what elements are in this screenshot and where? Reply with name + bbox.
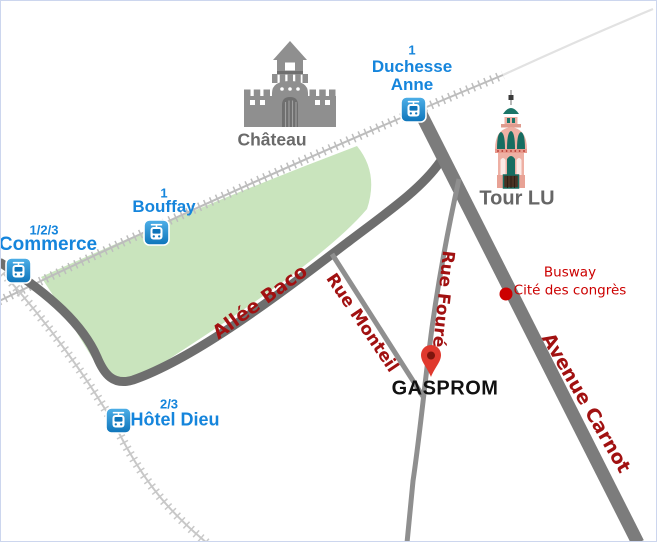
stop-label-hotel-dieu: Hôtel Dieu	[130, 410, 219, 431]
tour-lu-label: Tour LU	[479, 188, 554, 211]
tram-icon	[105, 407, 132, 434]
rue-monteil-road	[332, 254, 424, 398]
destination-label: GASPROM	[392, 378, 499, 401]
access-map: 1/2/3 Commerce 1 Bouffay 1 Duchesse Anne…	[0, 0, 657, 542]
chateau-label: Château	[237, 130, 306, 151]
stop-label-bouffay: Bouffay	[132, 197, 195, 217]
tram-icon	[5, 257, 32, 284]
busway-stop-icon	[500, 288, 513, 301]
busway-line1: Busway	[514, 264, 627, 282]
tour-lu-icon	[495, 90, 527, 188]
stop-label-duchesse-anne: Duchesse Anne	[366, 58, 458, 94]
stop-label-commerce: Commerce	[0, 234, 97, 256]
busway-stop-label: Busway Cité des congrès	[514, 264, 627, 299]
busway-line2: Cité des congrès	[514, 282, 627, 300]
tram-icon	[143, 219, 170, 246]
chateau-icon	[244, 41, 336, 127]
stop-lines-duchesse-anne: 1	[408, 43, 415, 58]
tram-icon	[400, 96, 427, 123]
